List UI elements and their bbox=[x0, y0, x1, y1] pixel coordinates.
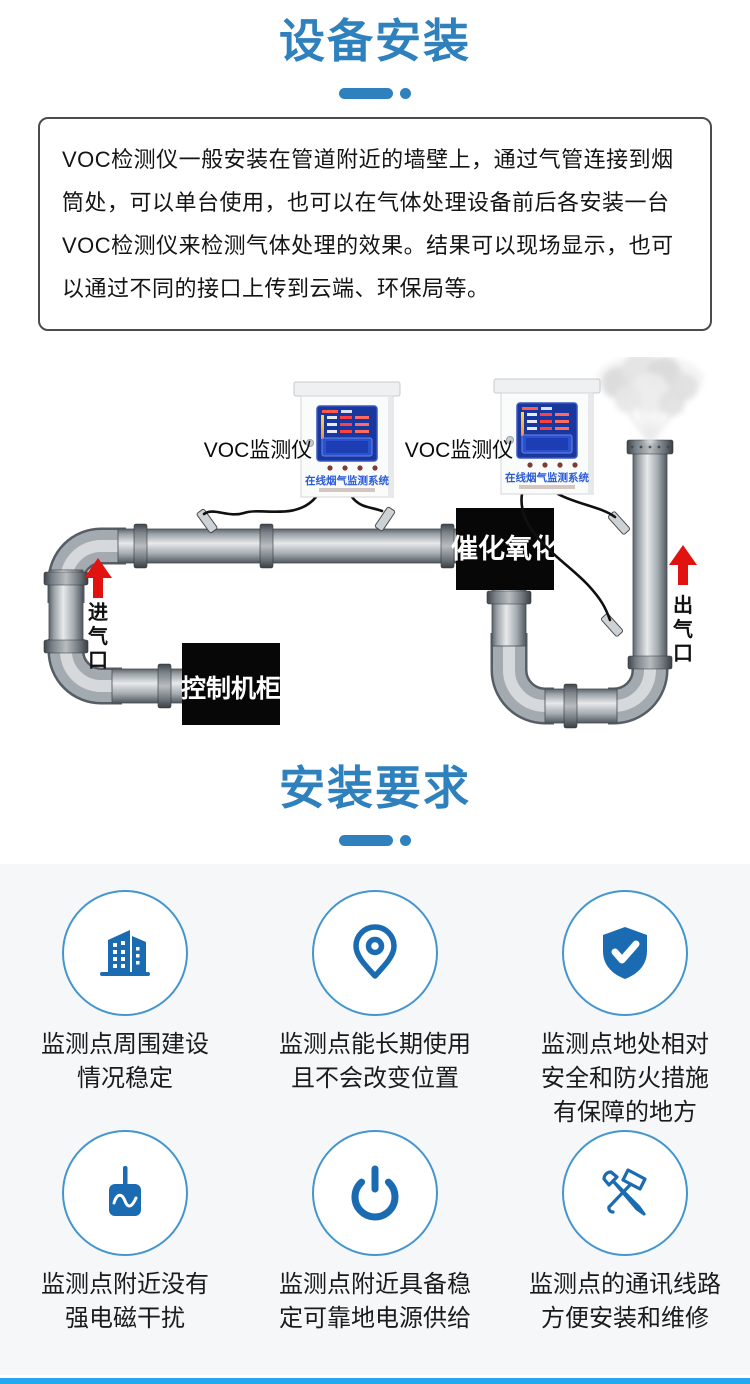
emi-monitor-icon bbox=[62, 1130, 188, 1256]
location-pin-icon bbox=[312, 890, 438, 1016]
requirement-item-6: 监测点的通讯线路 方便安装和维修 bbox=[505, 1130, 745, 1336]
svg-text:口: 口 bbox=[673, 643, 693, 665]
underline-bar bbox=[339, 88, 393, 99]
shield-check-icon bbox=[562, 890, 688, 1016]
requirement-item-5: 监测点附近具备稳 定可靠地电源供给 bbox=[255, 1130, 495, 1336]
requirement-caption: 监测点地处相对 安全和防火措施 有保障的地方 bbox=[541, 1028, 709, 1130]
bottom-right-pipe bbox=[545, 689, 617, 723]
top-horizontal-pipe bbox=[118, 529, 460, 563]
bottom-divider-bar bbox=[0, 1378, 750, 1384]
svg-text:进: 进 bbox=[88, 601, 108, 624]
pipe-diagram-svg: 催化氧化 控制机柜 在线烟气监测系统 VOC监测仪 VOC监测仪 bbox=[0, 357, 750, 747]
svg-text:气: 气 bbox=[87, 624, 108, 648]
control-cabinet-label: 控制机柜 bbox=[181, 675, 281, 703]
page-title-install: 设备安装 bbox=[0, 12, 750, 70]
repair-tools-icon bbox=[562, 1130, 688, 1256]
control-cabinet-box: 控制机柜 bbox=[181, 643, 281, 725]
svg-text:出: 出 bbox=[673, 594, 693, 617]
underline-dot bbox=[400, 88, 411, 99]
catalytic-oxidation-box: 催化氧化 bbox=[451, 508, 559, 590]
chimney-pipe bbox=[633, 453, 667, 667]
smoke-plume bbox=[596, 357, 704, 443]
intro-paragraph: VOC检测仪一般安装在管道附近的墙壁上，通过气管连接到烟筒处，可以单台使用，也可… bbox=[62, 147, 674, 301]
voc-monitor-label-2: VOC监测仪 bbox=[405, 439, 514, 462]
requirement-item-3: 监测点地处相对 安全和防火措施 有保障的地方 bbox=[505, 890, 745, 1130]
power-button-icon bbox=[312, 1130, 438, 1256]
title-underline-decoration bbox=[0, 88, 750, 99]
title-underline-decoration-2 bbox=[0, 835, 750, 846]
inlet-label: 进 气 口 bbox=[87, 601, 108, 672]
requirement-caption: 监测点附近具备稳 定可靠地电源供给 bbox=[279, 1268, 471, 1336]
voc-monitor-device-2 bbox=[494, 379, 600, 494]
requirement-item-4: 监测点附近没有 强电磁干扰 bbox=[5, 1130, 245, 1336]
requirements-panel: 监测点周围建设 情况稳定 监测点能长期使用 且不会改变位置 bbox=[0, 864, 750, 1375]
requirement-caption: 监测点附近没有 强电磁干扰 bbox=[41, 1268, 209, 1336]
catalytic-oxidation-label: 催化氧化 bbox=[451, 534, 559, 564]
svg-text:气: 气 bbox=[672, 617, 693, 641]
install-title-block: 设备安装 bbox=[0, 0, 750, 99]
building-icon bbox=[62, 890, 188, 1016]
svg-text:口: 口 bbox=[88, 650, 108, 672]
requirement-caption: 监测点的通讯线路 方便安装和维修 bbox=[529, 1268, 721, 1336]
outlet-label: 出 气 口 bbox=[672, 594, 693, 665]
page-title-require: 安装要求 bbox=[0, 759, 750, 817]
requirements-grid: 监测点周围建设 情况稳定 监测点能长期使用 且不会改变位置 bbox=[0, 890, 750, 1336]
underline-dot bbox=[400, 835, 411, 846]
requirement-caption: 监测点能长期使用 且不会改变位置 bbox=[279, 1028, 471, 1096]
bottom-left-pipe bbox=[112, 669, 188, 703]
underline-bar bbox=[339, 835, 393, 846]
voc-monitor-label-1: VOC监测仪 bbox=[204, 439, 313, 462]
device-screen-title: 在线烟气监测系统 bbox=[305, 474, 389, 487]
requirement-item-2: 监测点能长期使用 且不会改变位置 bbox=[255, 890, 495, 1130]
requirement-caption: 监测点周围建设 情况稳定 bbox=[41, 1028, 209, 1096]
requirement-item-1: 监测点周围建设 情况稳定 bbox=[5, 890, 245, 1130]
installation-diagram: 催化氧化 控制机柜 在线烟气监测系统 VOC监测仪 VOC监测仪 bbox=[0, 357, 750, 747]
intro-text-box: VOC检测仪一般安装在管道附近的墙壁上，通过气管连接到烟筒处，可以单台使用，也可… bbox=[38, 117, 712, 331]
require-title-block: 安装要求 bbox=[0, 747, 750, 846]
outlet-arrow bbox=[669, 545, 697, 585]
